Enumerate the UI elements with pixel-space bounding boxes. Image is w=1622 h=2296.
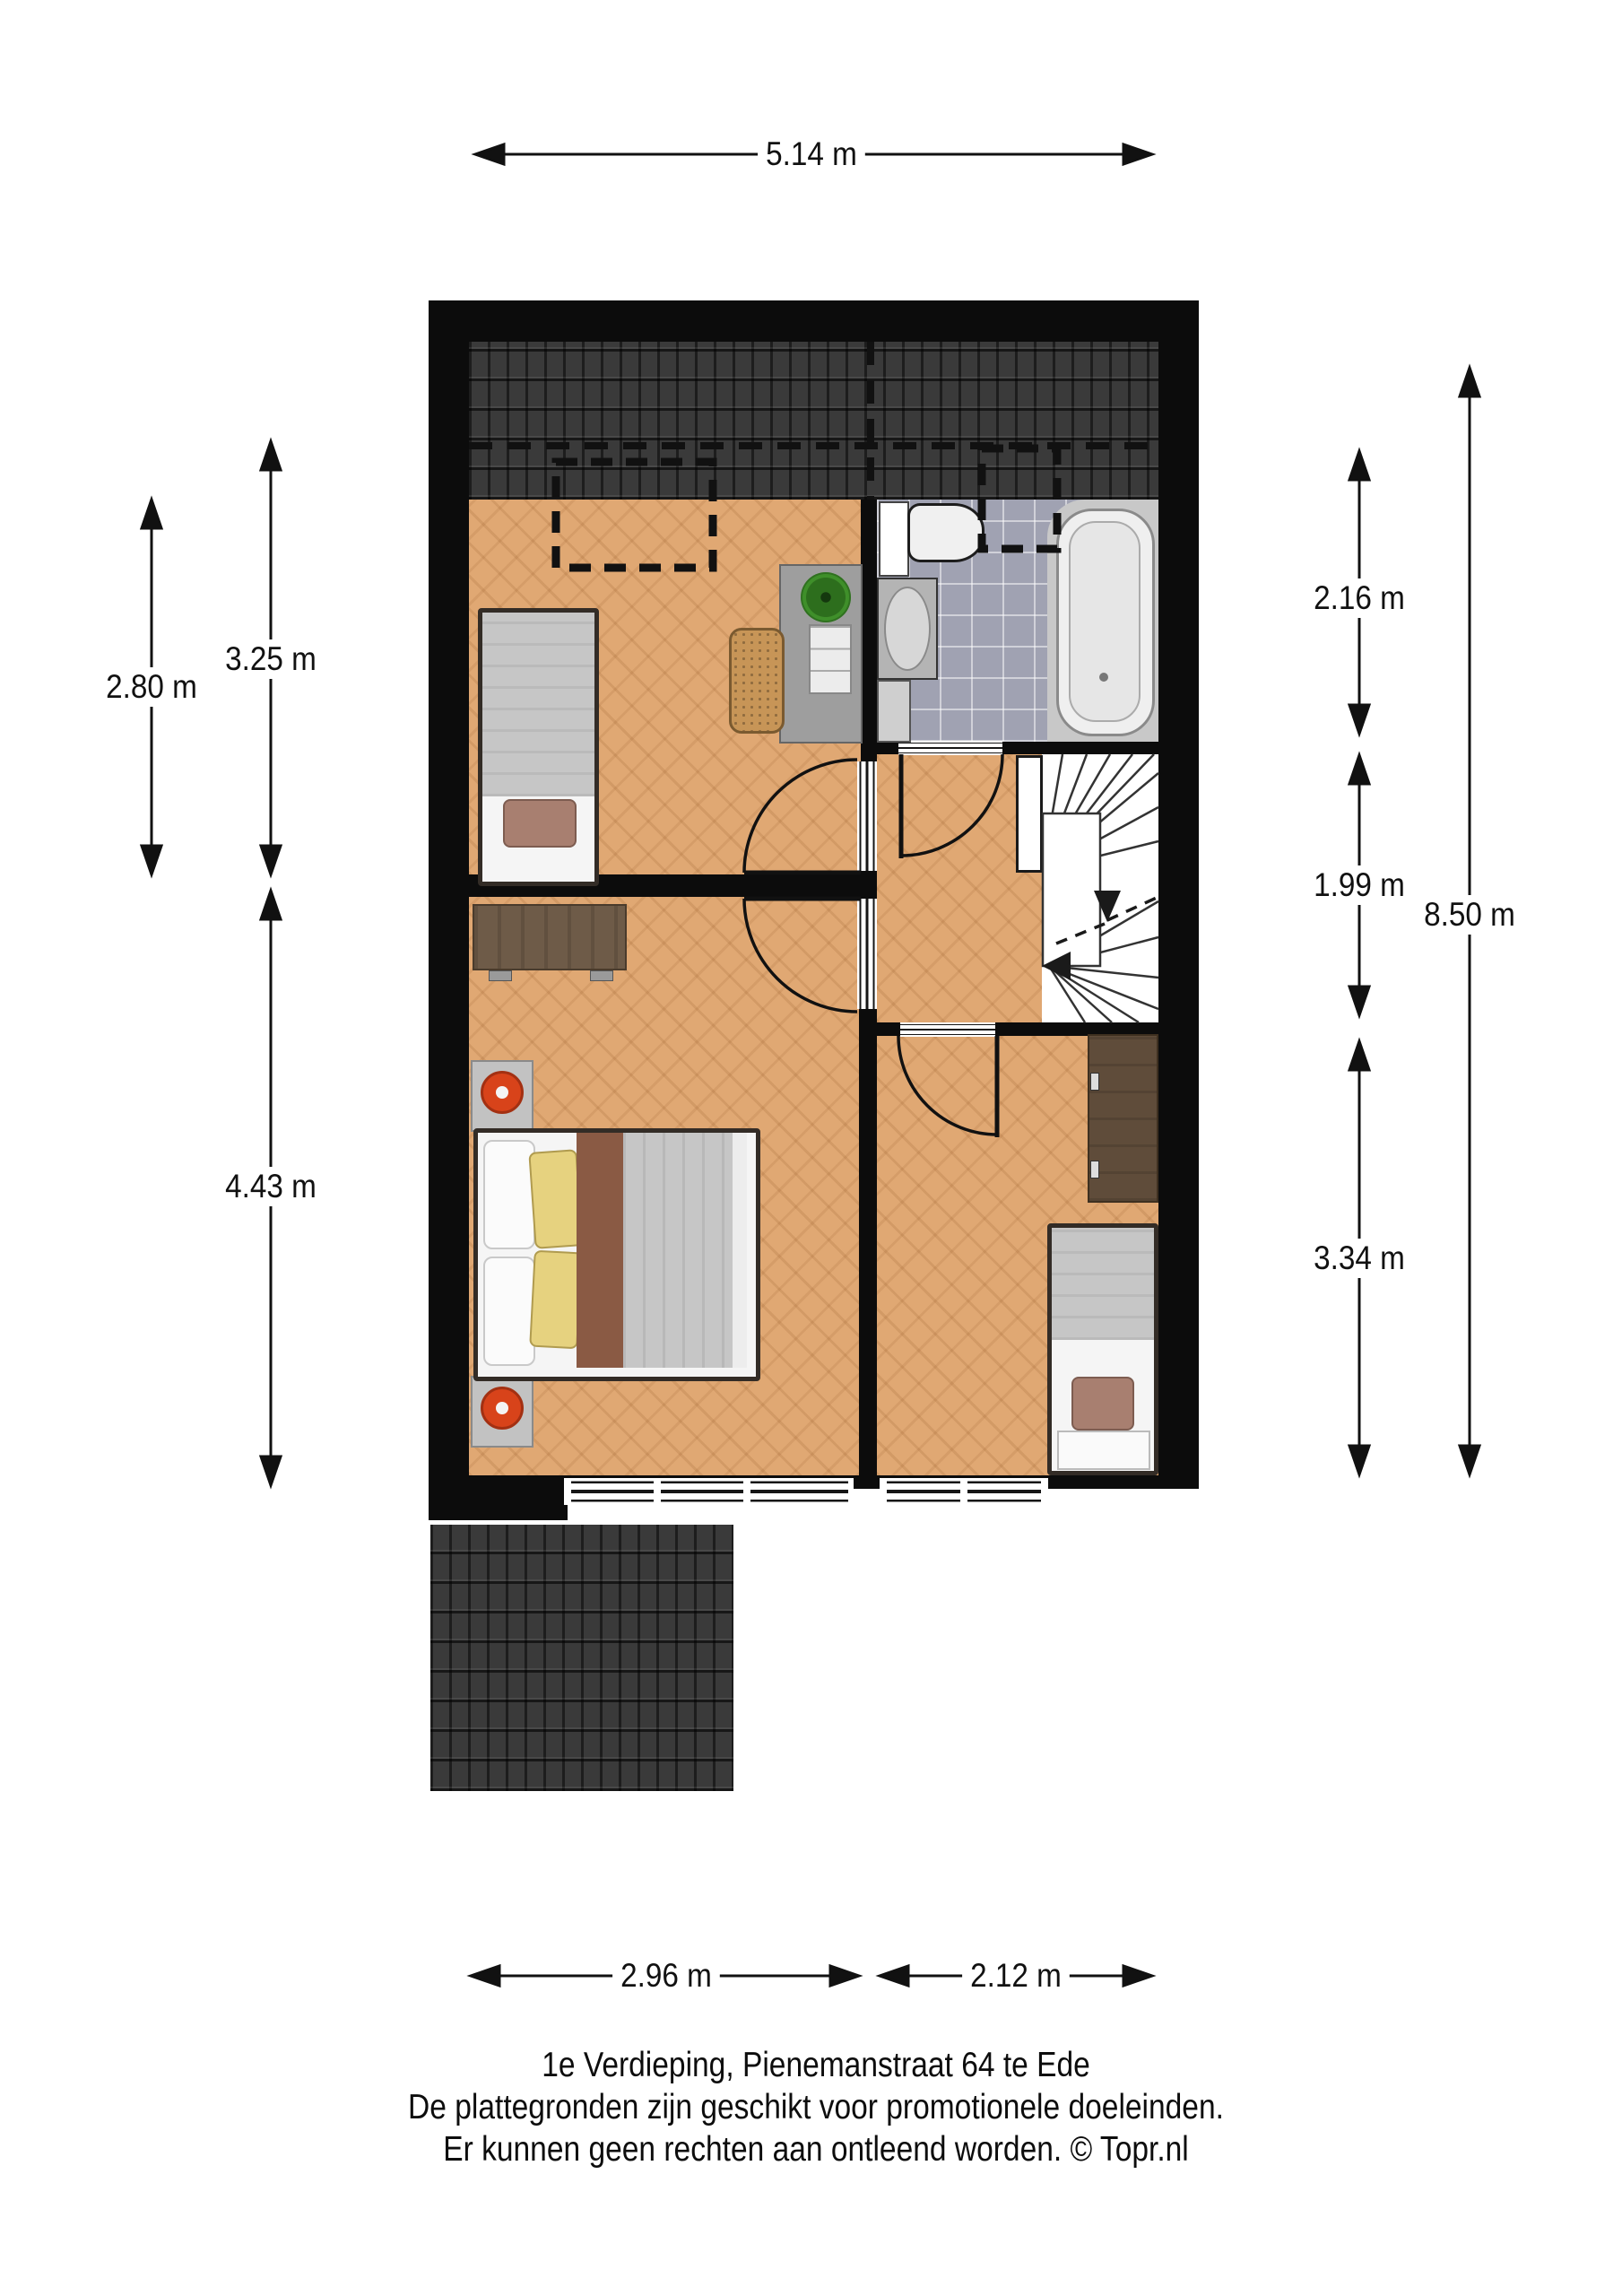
plan-vector-overlay	[0, 0, 1622, 2296]
dimension-label-left-1: 2.80 m	[98, 667, 205, 707]
dimension-label-right-4: 8.50 m	[1416, 895, 1523, 935]
caption-title: 1e Verdieping, Pienemanstraat 64 te Ede	[114, 2044, 1517, 2086]
dormer-dashed-outline	[556, 462, 713, 568]
dimension-label-left-3: 4.43 m	[217, 1167, 325, 1206]
dimension-label-right-1: 2.16 m	[1305, 578, 1413, 618]
dormer-dashed-outline	[982, 448, 1057, 549]
dimension-label-right-3: 3.34 m	[1305, 1239, 1413, 1278]
dimension-label-bottom-2: 2.12 m	[962, 1956, 1070, 1996]
caption-disclaimer-2: Er kunnen geen rechten aan ontleend word…	[114, 2128, 1517, 2170]
door-swing-arcs	[744, 754, 1002, 1137]
dimension-label-bottom-1: 2.96 m	[612, 1956, 720, 1996]
floor-plan-page: 5.14 m 2.80 m 3.25 m 4.43 m 2.16 m 1.99 …	[0, 0, 1622, 2296]
dimension-label-left-2: 3.25 m	[217, 639, 325, 679]
caption-disclaimer-1: De plattegronden zijn geschikt voor prom…	[114, 2086, 1517, 2128]
dimension-label-top: 5.14 m	[758, 135, 865, 174]
dimension-label-right-2: 1.99 m	[1305, 865, 1413, 905]
caption-block: 1e Verdieping, Pienemanstraat 64 te Ede …	[0, 2044, 1622, 2170]
stairs-treads	[1043, 754, 1158, 1022]
dimension-lines	[142, 144, 1479, 1986]
